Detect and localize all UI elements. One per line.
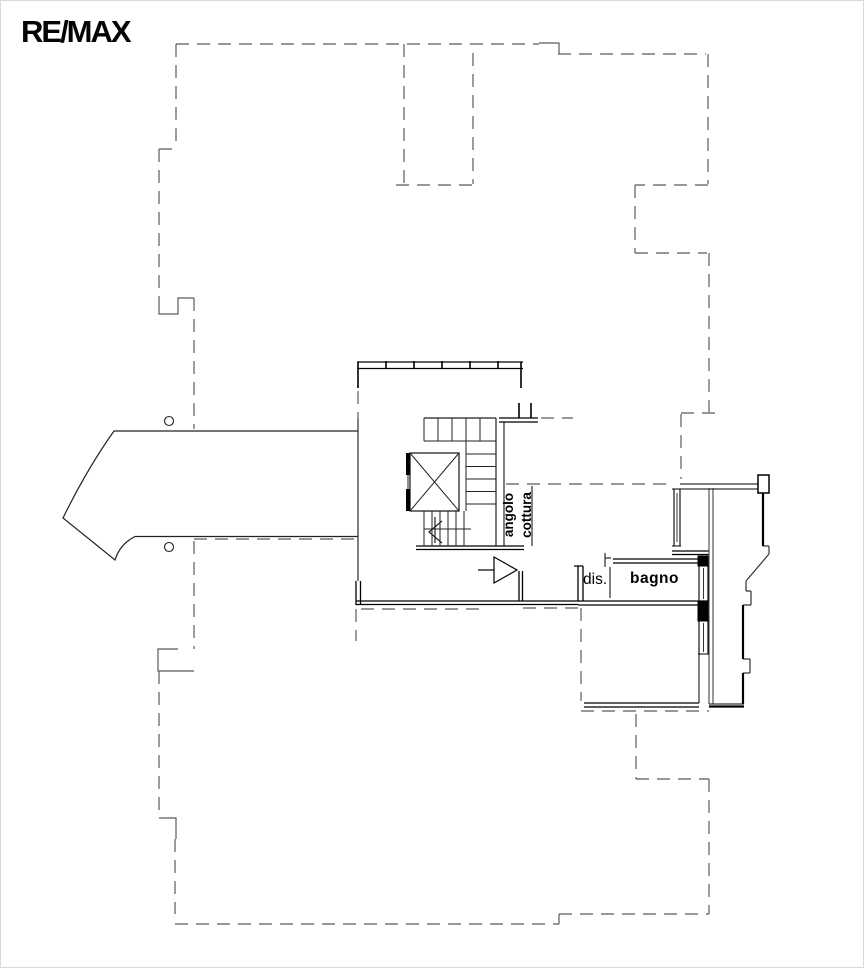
right-outer-wall	[709, 488, 713, 704]
room-label-dis: dis.	[583, 571, 607, 589]
balcony	[680, 475, 769, 707]
terrace-column	[165, 417, 174, 426]
balcony-post	[758, 475, 769, 493]
room-label-bagno: bagno	[630, 570, 679, 588]
terrace-column	[165, 543, 174, 552]
remax-logo: RE/MAX	[21, 14, 130, 50]
room-label-angolo-cottura: angolo cottura	[500, 479, 536, 551]
entrance-arrow	[478, 557, 517, 583]
floor-plan-drawing	[1, 1, 864, 968]
floor-plan-page: RE/MAX angolo cottura dis. bagno	[0, 0, 864, 968]
building-outline-dashed	[159, 44, 718, 924]
elevator	[408, 453, 459, 511]
terrace	[63, 417, 358, 561]
